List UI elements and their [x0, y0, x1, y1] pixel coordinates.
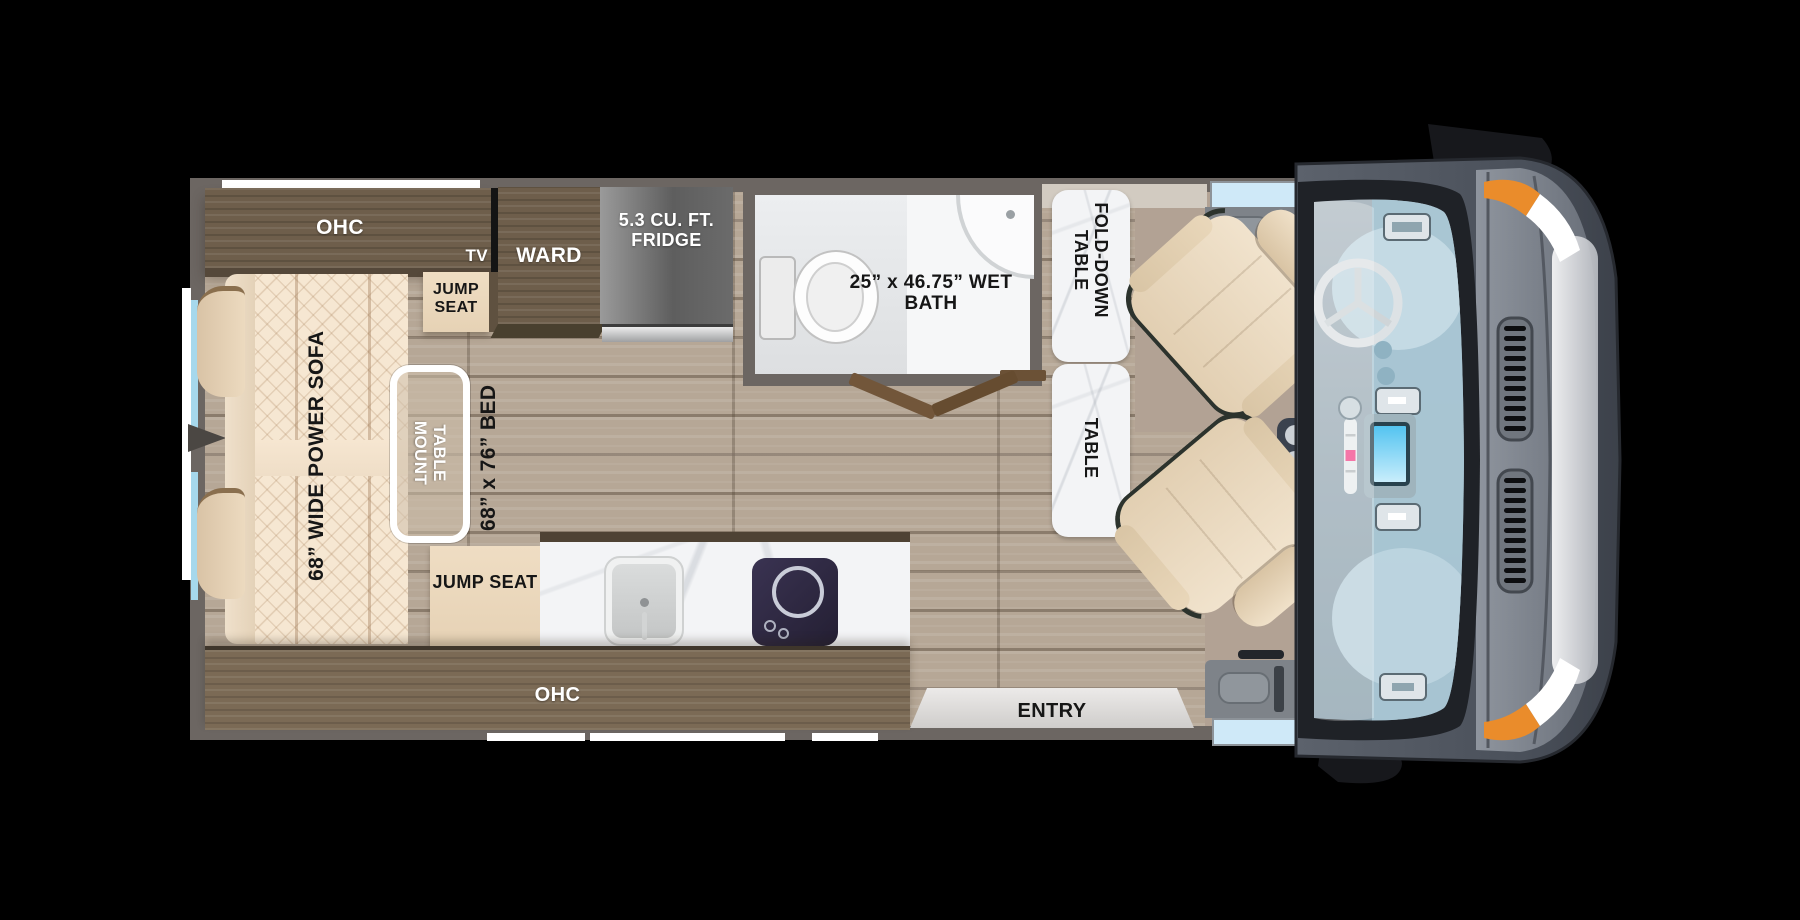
sofa-mid-band — [255, 440, 408, 476]
tv-label: TV — [444, 246, 488, 265]
toilet-tank — [759, 256, 796, 340]
jump-seat-bottom-label: JUMP SEAT — [430, 572, 540, 592]
kitchen-faucet — [640, 598, 649, 607]
stove-burner — [772, 566, 824, 618]
table-mount-label: TABLE MOUNT — [411, 408, 449, 498]
glass-sheen — [1314, 201, 1374, 721]
fridge-label: 5.3 CU. FT. FRIDGE — [606, 210, 727, 250]
window-bottom-3 — [812, 733, 878, 741]
sofa-label: 68” WIDE POWER SOFA — [305, 291, 329, 621]
sofa-pillow-top — [197, 286, 245, 397]
table-label: TABLE — [1081, 398, 1101, 498]
cab-door-bottom-handle — [1218, 672, 1270, 704]
fridge-step — [602, 324, 733, 342]
fold-down-table-label: FOLD-DOWN TABLE — [1071, 202, 1111, 318]
jump-seat-top-label: JUMP SEAT — [423, 281, 489, 317]
fridge — [600, 187, 733, 324]
kitchen-faucet-stem — [642, 612, 647, 640]
wet-bath-label: 25” x 46.75” WET BATH — [833, 272, 1029, 315]
corner-sink-faucet — [1006, 210, 1015, 219]
rear-door-marker — [188, 424, 226, 452]
wardrobe-label: WARD — [498, 244, 600, 268]
sofa-pillow-bottom — [197, 488, 245, 599]
wardrobe-base — [491, 324, 606, 338]
window-bottom-2 — [590, 733, 785, 741]
entry-label: ENTRY — [910, 700, 1194, 722]
window-bottom-1 — [487, 733, 585, 741]
front-bumper — [1552, 236, 1598, 684]
infotainment-screen — [1372, 424, 1408, 484]
counter-edge — [540, 532, 910, 542]
overhead-cabinet-bottom-label: OHC — [205, 684, 910, 706]
stove-knob-2 — [778, 628, 789, 639]
overhead-cabinet-top-label: OHC — [205, 216, 475, 240]
floorplan-canvas: OHC TV JUMP SEAT WARD 5.3 CU. FT. FRIDGE… — [0, 0, 1800, 920]
kitchen-counter — [540, 542, 910, 648]
jump-seat-bottom — [430, 546, 540, 646]
stove-knob-1 — [764, 620, 776, 632]
van-front — [1280, 118, 1640, 802]
